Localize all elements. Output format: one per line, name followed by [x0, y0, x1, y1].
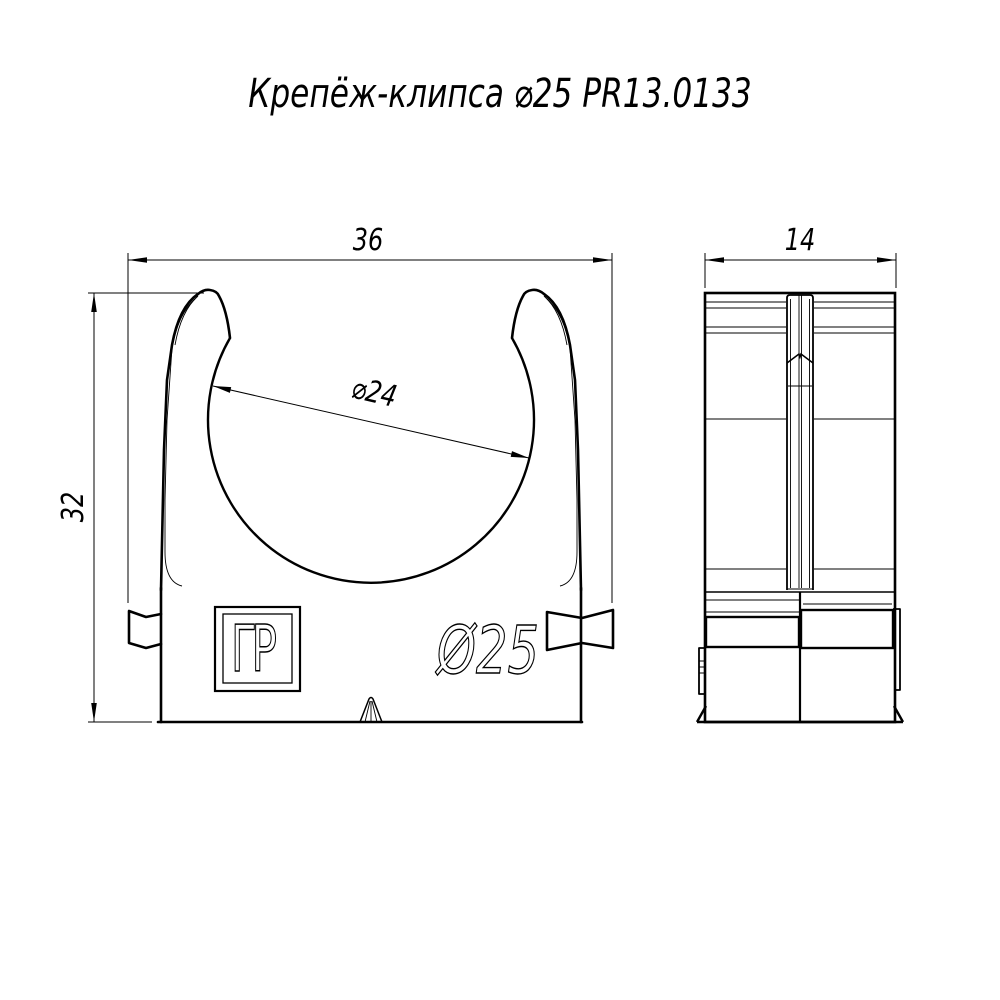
dimension-height-value: 32: [56, 492, 90, 523]
dimension-depth-value: 14: [785, 223, 816, 257]
drawing-sheet: Крепёж-клипса ⌀25 PR13.0133 ГР: [0, 0, 1000, 1000]
embossed-diameter-label: Ø25: [435, 612, 539, 689]
canvas-background: [0, 0, 1000, 1000]
dimension-width-value: 36: [353, 223, 384, 257]
manufacturer-logo-monogram: ГР: [231, 612, 276, 686]
drawing-title: Крепёж-клипса ⌀25 PR13.0133: [248, 71, 752, 117]
technical-drawing-canvas: Крепёж-клипса ⌀25 PR13.0133 ГР: [0, 0, 1000, 1000]
